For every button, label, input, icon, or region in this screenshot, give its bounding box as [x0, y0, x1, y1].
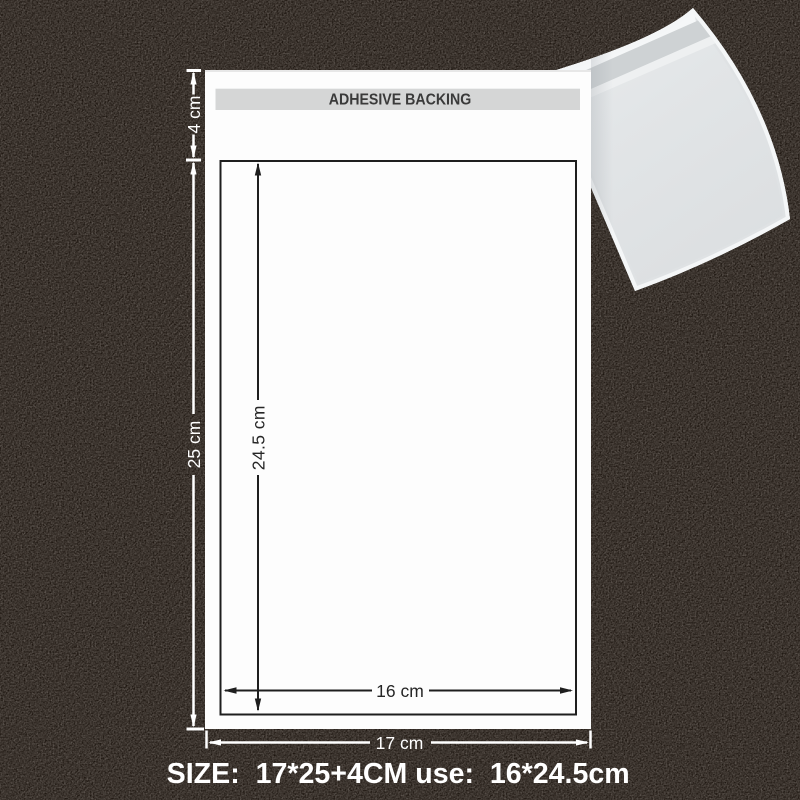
svg-text:17 cm: 17 cm — [376, 733, 424, 753]
svg-text:25 cm: 25 cm — [184, 421, 204, 469]
svg-text:ADHESIVE BACKING: ADHESIVE BACKING — [329, 92, 472, 109]
svg-text:16 cm: 16 cm — [376, 681, 424, 701]
svg-text:4 cm: 4 cm — [184, 96, 204, 134]
svg-text:24.5 cm: 24.5 cm — [248, 405, 268, 470]
svg-text:SIZE: 17*25+4CM use: 16*24.5: SIZE: 17*25+4CM use: 16*24.5cm — [167, 758, 630, 790]
